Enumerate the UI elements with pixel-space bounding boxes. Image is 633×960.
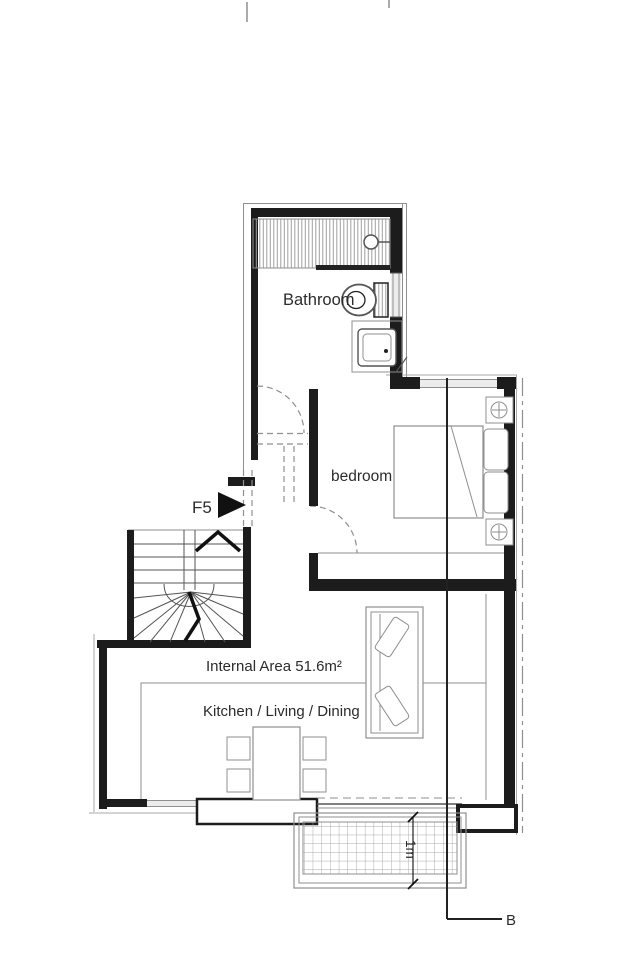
living-left-wall [99, 641, 107, 809]
entrance-arrow-icon [218, 492, 246, 518]
landing-wall-stub [228, 477, 255, 486]
sheet-edge-ticks [247, 0, 389, 22]
chair [303, 769, 326, 792]
bedroom-left-wall [309, 389, 318, 506]
floor-plan-drawing: Bathroom F5 [0, 0, 633, 960]
bedroom-window [420, 380, 497, 388]
floor-plan-page: Bathroom F5 [0, 0, 633, 960]
balcony-depth-label: 1m [403, 840, 418, 859]
bathroom-right-wall-upper [390, 208, 402, 273]
bathroom-top-wall [252, 208, 398, 217]
balcony-tile-hatch [303, 822, 457, 874]
living-window [147, 801, 197, 807]
section-marker-label: B [506, 912, 516, 929]
nightstand-top [486, 397, 513, 423]
shower-tray [253, 219, 390, 268]
pillow [484, 429, 508, 470]
stair-treads [134, 530, 243, 642]
chair [227, 769, 250, 792]
bedroom-label: bedroom [331, 468, 392, 485]
kitchen-living-dining-label: Kitchen / Living / Dining [203, 703, 360, 720]
living-area: Internal Area 51.6m² Kitchen / Living / … [99, 591, 516, 831]
internal-area-label: Internal Area 51.6m² [206, 658, 342, 675]
shower-drain-icon [364, 235, 378, 249]
balcony-sliding-door [317, 798, 462, 808]
bed [394, 426, 508, 518]
sofa [366, 607, 423, 738]
bedroom-area: bedroom [309, 357, 516, 591]
bathroom-label: Bathroom [283, 291, 355, 309]
staircase [97, 527, 251, 648]
chair [227, 737, 250, 760]
bathroom-window [390, 273, 402, 317]
unit-ref-label: F5 [192, 498, 212, 517]
unit-reference: F5 [192, 492, 246, 518]
nightstand-bottom [486, 519, 513, 545]
bathroom-door-swing [257, 386, 304, 433]
bottom-right-wall-block [458, 806, 516, 831]
stair-break-line [185, 592, 199, 641]
chair [303, 737, 326, 760]
stair-direction-arrow [196, 532, 240, 551]
faucet-icon [384, 349, 388, 353]
bedroom-door-swing [310, 506, 357, 553]
living-right-wall [504, 591, 515, 807]
pillow [484, 472, 508, 513]
dining-table [253, 727, 300, 800]
balcony: 1m [294, 812, 466, 889]
dining-set [227, 727, 326, 800]
bedroom-bottom-wall [309, 579, 516, 591]
